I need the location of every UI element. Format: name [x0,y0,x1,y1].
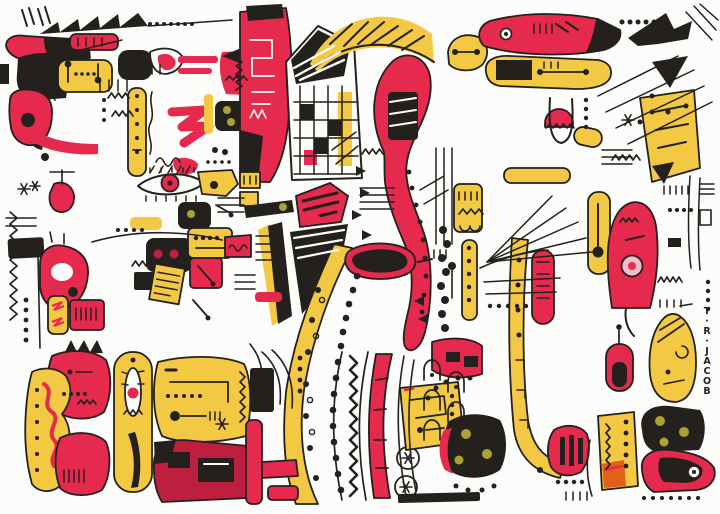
artwork-canvas: T·R·JACOB [0,0,720,514]
bird-shape [628,13,692,46]
mid-left-region [8,170,251,334]
black-boulder [641,406,705,452]
black-dotted-boulder [445,414,506,478]
artwork: T·R·JACOB [0,0,720,514]
bottom-left-region [25,340,298,504]
artist-signature: T·R·JACOB [703,306,711,397]
red-zigzag-stroke [172,110,209,143]
saw-shape [40,13,148,34]
red-vertical-band [369,354,392,498]
yellow-teardrop [650,314,696,402]
top-right-region [479,13,700,184]
